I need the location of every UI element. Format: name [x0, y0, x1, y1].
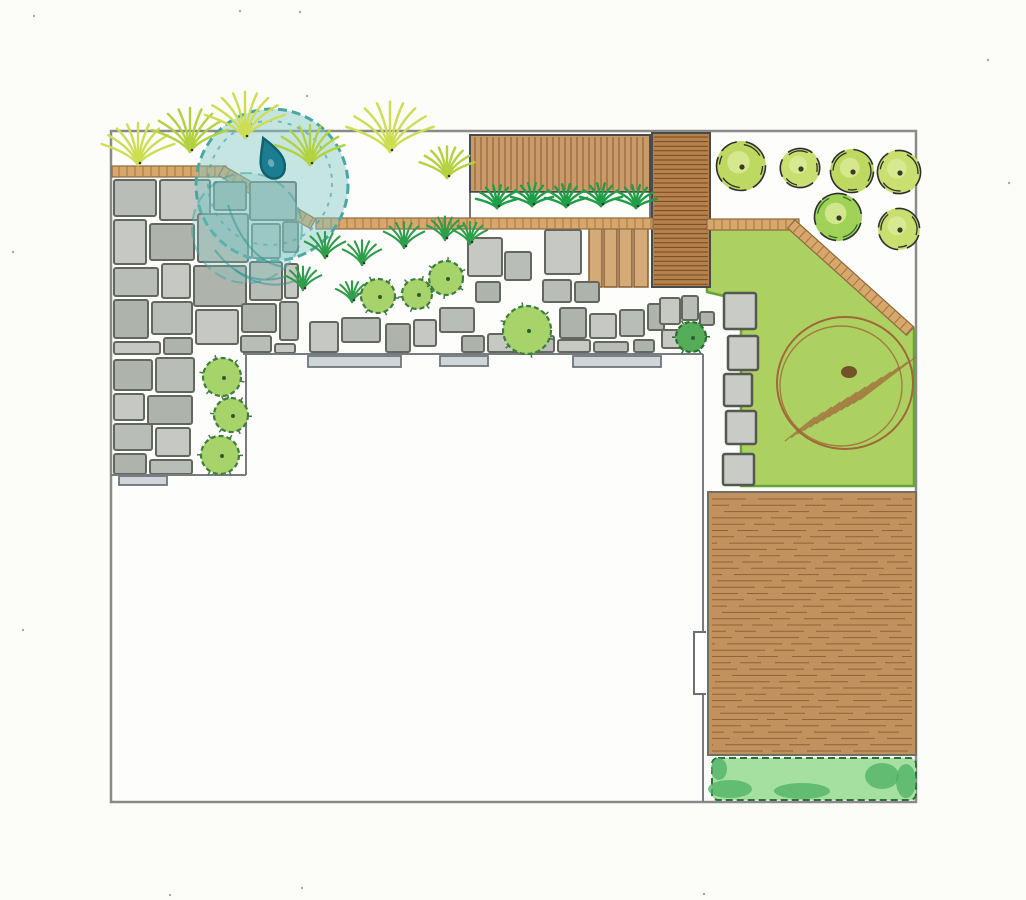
pond-inner-circle — [192, 173, 302, 283]
seed-dot — [471, 241, 474, 244]
timber-steps — [589, 228, 648, 287]
shrub-center-dot — [231, 414, 235, 418]
tree-canopy-highlight — [825, 203, 847, 225]
step-slat — [573, 356, 661, 367]
deck-seat-surface — [470, 135, 650, 192]
seed-dot — [498, 205, 501, 208]
seed-dot — [191, 149, 194, 152]
hedge-foliage-blob — [711, 758, 727, 780]
paving-stone — [280, 302, 298, 340]
stepping-stone — [726, 411, 756, 444]
shrub-canopy — [203, 358, 241, 396]
speckle-dot — [33, 15, 35, 17]
speckle-dot — [12, 251, 14, 253]
paving-stone — [275, 344, 295, 353]
shrub-center-dot — [220, 454, 224, 458]
shrub-spike — [522, 302, 523, 306]
stepping-stones — [723, 293, 758, 485]
hedge-foliage-blob — [708, 780, 752, 798]
paving-slab — [310, 322, 338, 352]
hedge-foliage-blob — [865, 763, 899, 789]
shrub-spike — [241, 381, 245, 382]
speckle-dot — [1008, 182, 1010, 184]
seed-dot — [567, 204, 570, 207]
paving-stone — [150, 460, 192, 474]
shrub-spike — [199, 372, 203, 373]
paving-slab — [414, 320, 436, 346]
tree-trunk-dot — [897, 170, 902, 175]
tree-canopy-highlight — [840, 158, 860, 178]
gate-marker — [694, 632, 706, 694]
shrub-center-dot — [417, 293, 421, 297]
paving-slab — [682, 296, 698, 320]
tree-trunk-dot — [836, 215, 841, 220]
speckle-dot — [703, 893, 705, 895]
speckle-dot — [169, 894, 171, 896]
canopy-trunk-mark — [841, 366, 857, 378]
step-plank — [619, 228, 632, 287]
shrub-center-dot — [691, 336, 695, 340]
paving-slab — [386, 324, 410, 352]
seed-dot — [139, 162, 142, 165]
seed-dot — [304, 287, 307, 290]
paving-stone — [148, 396, 192, 424]
garden-plan-canvas — [0, 0, 1026, 900]
shrub-canopy — [429, 261, 463, 295]
shrub-center-dot — [527, 329, 531, 333]
stepping-stone — [724, 374, 752, 406]
shrub-center-dot — [378, 295, 382, 299]
stepping-stone — [723, 454, 754, 485]
speckle-dot — [301, 887, 303, 889]
seed-dot — [246, 135, 249, 138]
tree-trunk-dot — [897, 227, 902, 232]
shrub-canopy — [214, 398, 248, 432]
step-plank — [589, 228, 602, 287]
paving-stone — [114, 394, 144, 420]
paving-slab — [558, 340, 590, 352]
speckle-dot — [987, 59, 989, 61]
paving-slab — [342, 318, 380, 342]
tree-canopy-highlight — [789, 156, 807, 174]
stepping-stone — [728, 336, 758, 370]
paving-slab — [505, 252, 531, 280]
shrub-canopy — [402, 279, 432, 309]
paving-slab — [440, 308, 474, 332]
tree-trunk-dot — [798, 166, 803, 171]
paving-slab — [594, 342, 628, 352]
paving-slab — [575, 282, 599, 302]
shrub-canopy — [201, 436, 239, 474]
step-plank — [634, 228, 648, 287]
shrub-spike — [531, 354, 532, 358]
paving-stone — [156, 428, 190, 456]
edging-strip — [707, 219, 799, 230]
paving-stone — [156, 358, 194, 392]
step-slat — [308, 356, 401, 367]
seed-dot — [533, 203, 536, 206]
paving-stone — [114, 268, 158, 296]
paving-slab — [634, 340, 654, 352]
paving-slab — [476, 282, 500, 302]
shrub-spike — [398, 297, 402, 298]
step-slat — [119, 476, 167, 485]
seed-dot — [448, 175, 451, 178]
edging-strip — [316, 218, 653, 229]
paving-slab — [590, 314, 616, 338]
paving-slab — [545, 230, 581, 274]
paving-slab — [543, 280, 571, 302]
paving-slab — [560, 308, 586, 338]
paving-stone — [114, 220, 146, 264]
paving-slab — [462, 336, 484, 352]
speckle-dot — [22, 629, 24, 631]
seed-dot — [446, 237, 449, 240]
tree-canopy-highlight — [887, 216, 906, 235]
garden-plan-svg — [0, 0, 1026, 900]
seed-dot — [637, 205, 640, 208]
paving-slab — [468, 238, 502, 276]
main-decking — [708, 492, 916, 755]
shrub-center-dot — [446, 277, 450, 281]
paving-slab — [660, 298, 680, 324]
brick-edging — [316, 218, 653, 229]
boardwalk-surface — [652, 133, 710, 287]
paving-stone — [114, 342, 160, 354]
paving-stone — [164, 338, 192, 354]
tree-trunk-dot — [739, 164, 744, 169]
paving-stone — [242, 304, 276, 332]
shrub-canopy — [361, 279, 395, 313]
paving-stone — [114, 424, 152, 450]
paving-stone — [114, 360, 152, 390]
hedge-foliage-blob — [774, 783, 830, 799]
shrub-canopy — [676, 322, 706, 352]
hedge-group — [708, 758, 916, 800]
shrub-canopy — [503, 306, 551, 354]
speckle-dot — [299, 11, 301, 13]
seed-dot — [391, 149, 394, 152]
seed-dot — [311, 162, 314, 165]
hedge-foliage-blob — [896, 764, 916, 798]
stepping-stone — [724, 293, 756, 329]
paving-stone — [150, 224, 194, 260]
paving-stone — [152, 302, 192, 334]
seed-dot — [326, 255, 329, 258]
paving-stone — [241, 336, 271, 352]
tree — [716, 141, 766, 191]
seed-dot — [353, 299, 356, 302]
speckle-dot — [239, 10, 241, 12]
step-plank — [604, 228, 617, 287]
boardwalk-path — [652, 133, 710, 287]
paving-slab — [620, 310, 644, 336]
speckle-dot — [306, 95, 308, 97]
seed-dot — [602, 203, 605, 206]
paving-slab — [700, 312, 714, 325]
tree-trunk-dot — [850, 169, 855, 174]
tree-canopy-highlight — [887, 159, 907, 179]
shrub-center-dot — [222, 376, 226, 380]
paving-stone — [114, 300, 148, 338]
step-slat — [440, 356, 488, 366]
paving-stone — [196, 310, 238, 344]
tree-canopy-highlight — [727, 151, 750, 174]
paving-stone — [114, 180, 156, 216]
deck-seating-area — [470, 135, 650, 192]
paving-stone — [114, 454, 146, 474]
paving-stone — [162, 264, 190, 298]
brick-edging — [707, 219, 799, 230]
decking-surface — [708, 492, 916, 755]
seed-dot — [363, 262, 366, 265]
seed-dot — [405, 245, 408, 248]
